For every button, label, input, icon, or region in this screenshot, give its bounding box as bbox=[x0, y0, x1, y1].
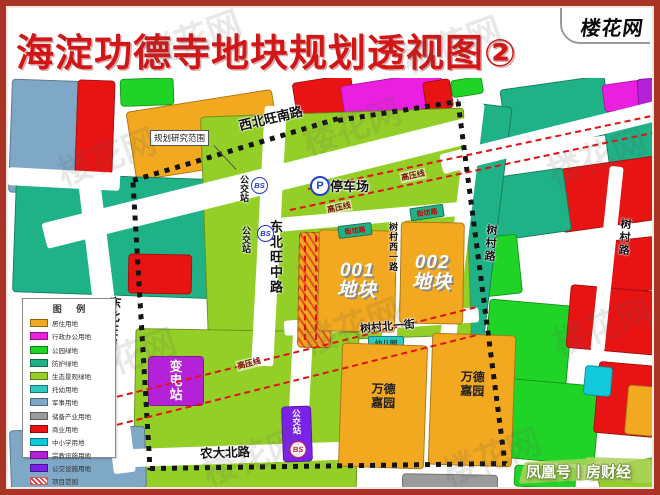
legend-swatch bbox=[30, 332, 48, 340]
logo-loufawang: 楼花网 bbox=[579, 12, 646, 41]
garden-label-east: 万德嘉园 bbox=[457, 371, 487, 466]
reserve-strip-bottom bbox=[402, 473, 498, 488]
legend-row: 商业用地 bbox=[30, 424, 115, 434]
road-label-shucun-west-first: 树村西一路 bbox=[387, 222, 400, 272]
legend-swatch bbox=[30, 319, 48, 327]
neighborhood-road-label: 街坊路 bbox=[344, 224, 366, 236]
legend-swatch bbox=[30, 346, 48, 354]
bus-station-label-2: 公交站 bbox=[240, 226, 253, 253]
legend-row: 居住用地 bbox=[30, 318, 115, 328]
plot-002-number: 002 bbox=[415, 253, 450, 274]
publisher-text: 凤凰号丨房财经 bbox=[526, 461, 631, 482]
legend-row: 公园绿地 bbox=[30, 345, 115, 355]
planning-map-page: { "header": { "title": "海淀功德寺地块规划透视图②", … bbox=[0, 0, 660, 495]
legend-swatch bbox=[30, 438, 48, 446]
research-scope-callout: 规划研究范围 bbox=[150, 130, 209, 146]
residential-block-rightedge bbox=[624, 384, 652, 437]
page-title: 海淀功德寺地块规划透视图② bbox=[16, 22, 517, 77]
legend-swatch bbox=[30, 398, 48, 406]
road-label-nongda-north: 农大北路 bbox=[200, 441, 251, 462]
commercial-block-topleft bbox=[74, 79, 115, 174]
bus-station-label-1: 公交站 bbox=[238, 175, 251, 202]
legend-swatch bbox=[30, 359, 48, 367]
legend-row: 防护绿地 bbox=[30, 358, 115, 368]
legend-swatch-hatch bbox=[30, 477, 48, 485]
school-block-bottomright bbox=[583, 365, 614, 397]
bus-icon: BS bbox=[257, 225, 274, 242]
legend-row: 项目范围 bbox=[30, 476, 115, 486]
legend-swatch bbox=[30, 451, 48, 459]
legend-row: 生态景观绿地 bbox=[30, 371, 115, 381]
bus-station-block: 公交站 BS bbox=[281, 405, 313, 462]
park-block-small-top bbox=[450, 78, 484, 98]
legend: 图 例 居住用地 行政办公用地 公园绿地 防护绿地 生态景观绿地 托幼用地 军事… bbox=[22, 298, 116, 458]
legend-row: 军事用地 bbox=[30, 397, 115, 407]
legend-row: 行政办公用地 bbox=[30, 331, 115, 341]
road-label-shucun-2: 树村路 bbox=[615, 217, 634, 257]
bus-icon: BS bbox=[251, 177, 268, 194]
parking-icon: P bbox=[310, 176, 330, 196]
logo-frame: 楼花网 bbox=[560, 6, 650, 44]
legend-row: 托幼用地 bbox=[30, 384, 115, 394]
legend-row: 储备产业用地 bbox=[30, 411, 115, 421]
plot-002-suffix: 地块 bbox=[412, 273, 452, 294]
bus-icon: BS bbox=[289, 441, 307, 459]
legend-swatch bbox=[30, 412, 48, 420]
plot-002: 002 地块 bbox=[399, 221, 465, 324]
legend-swatch bbox=[30, 385, 48, 393]
power-line-vertical-2 bbox=[315, 236, 317, 340]
legend-swatch bbox=[30, 425, 48, 433]
legend-title: 图 例 bbox=[29, 302, 115, 315]
neighborhood-road-label: 街坊路 bbox=[416, 206, 438, 219]
legend-row: 公交设施用地 bbox=[30, 463, 115, 473]
legend-swatch bbox=[30, 464, 48, 472]
power-line-vertical-1 bbox=[304, 236, 306, 340]
planning-map: 001 地块 002 地块 街坊路 街坊路 幼儿园 万德嘉园 万德嘉园 变电站 … bbox=[8, 78, 652, 488]
plot-001-number: 001 bbox=[340, 261, 375, 282]
plot-001-suffix: 地块 bbox=[337, 281, 377, 302]
garden-label-west: 万德嘉园 bbox=[368, 383, 397, 468]
garden-block-west: 万德嘉园 bbox=[338, 343, 428, 470]
road-label-shucun: 树村路 bbox=[481, 223, 500, 263]
parking-label: 停车场 bbox=[330, 176, 369, 195]
legend-row: 宗教设施用地 bbox=[30, 450, 115, 460]
park-block-top bbox=[120, 78, 175, 107]
bus-station-label: 公交站 bbox=[290, 409, 303, 435]
legend-swatch bbox=[30, 372, 48, 380]
publisher-watermark: 凤凰号丨房财经 bbox=[522, 456, 654, 486]
legend-row: 中小学用地 bbox=[30, 437, 115, 447]
